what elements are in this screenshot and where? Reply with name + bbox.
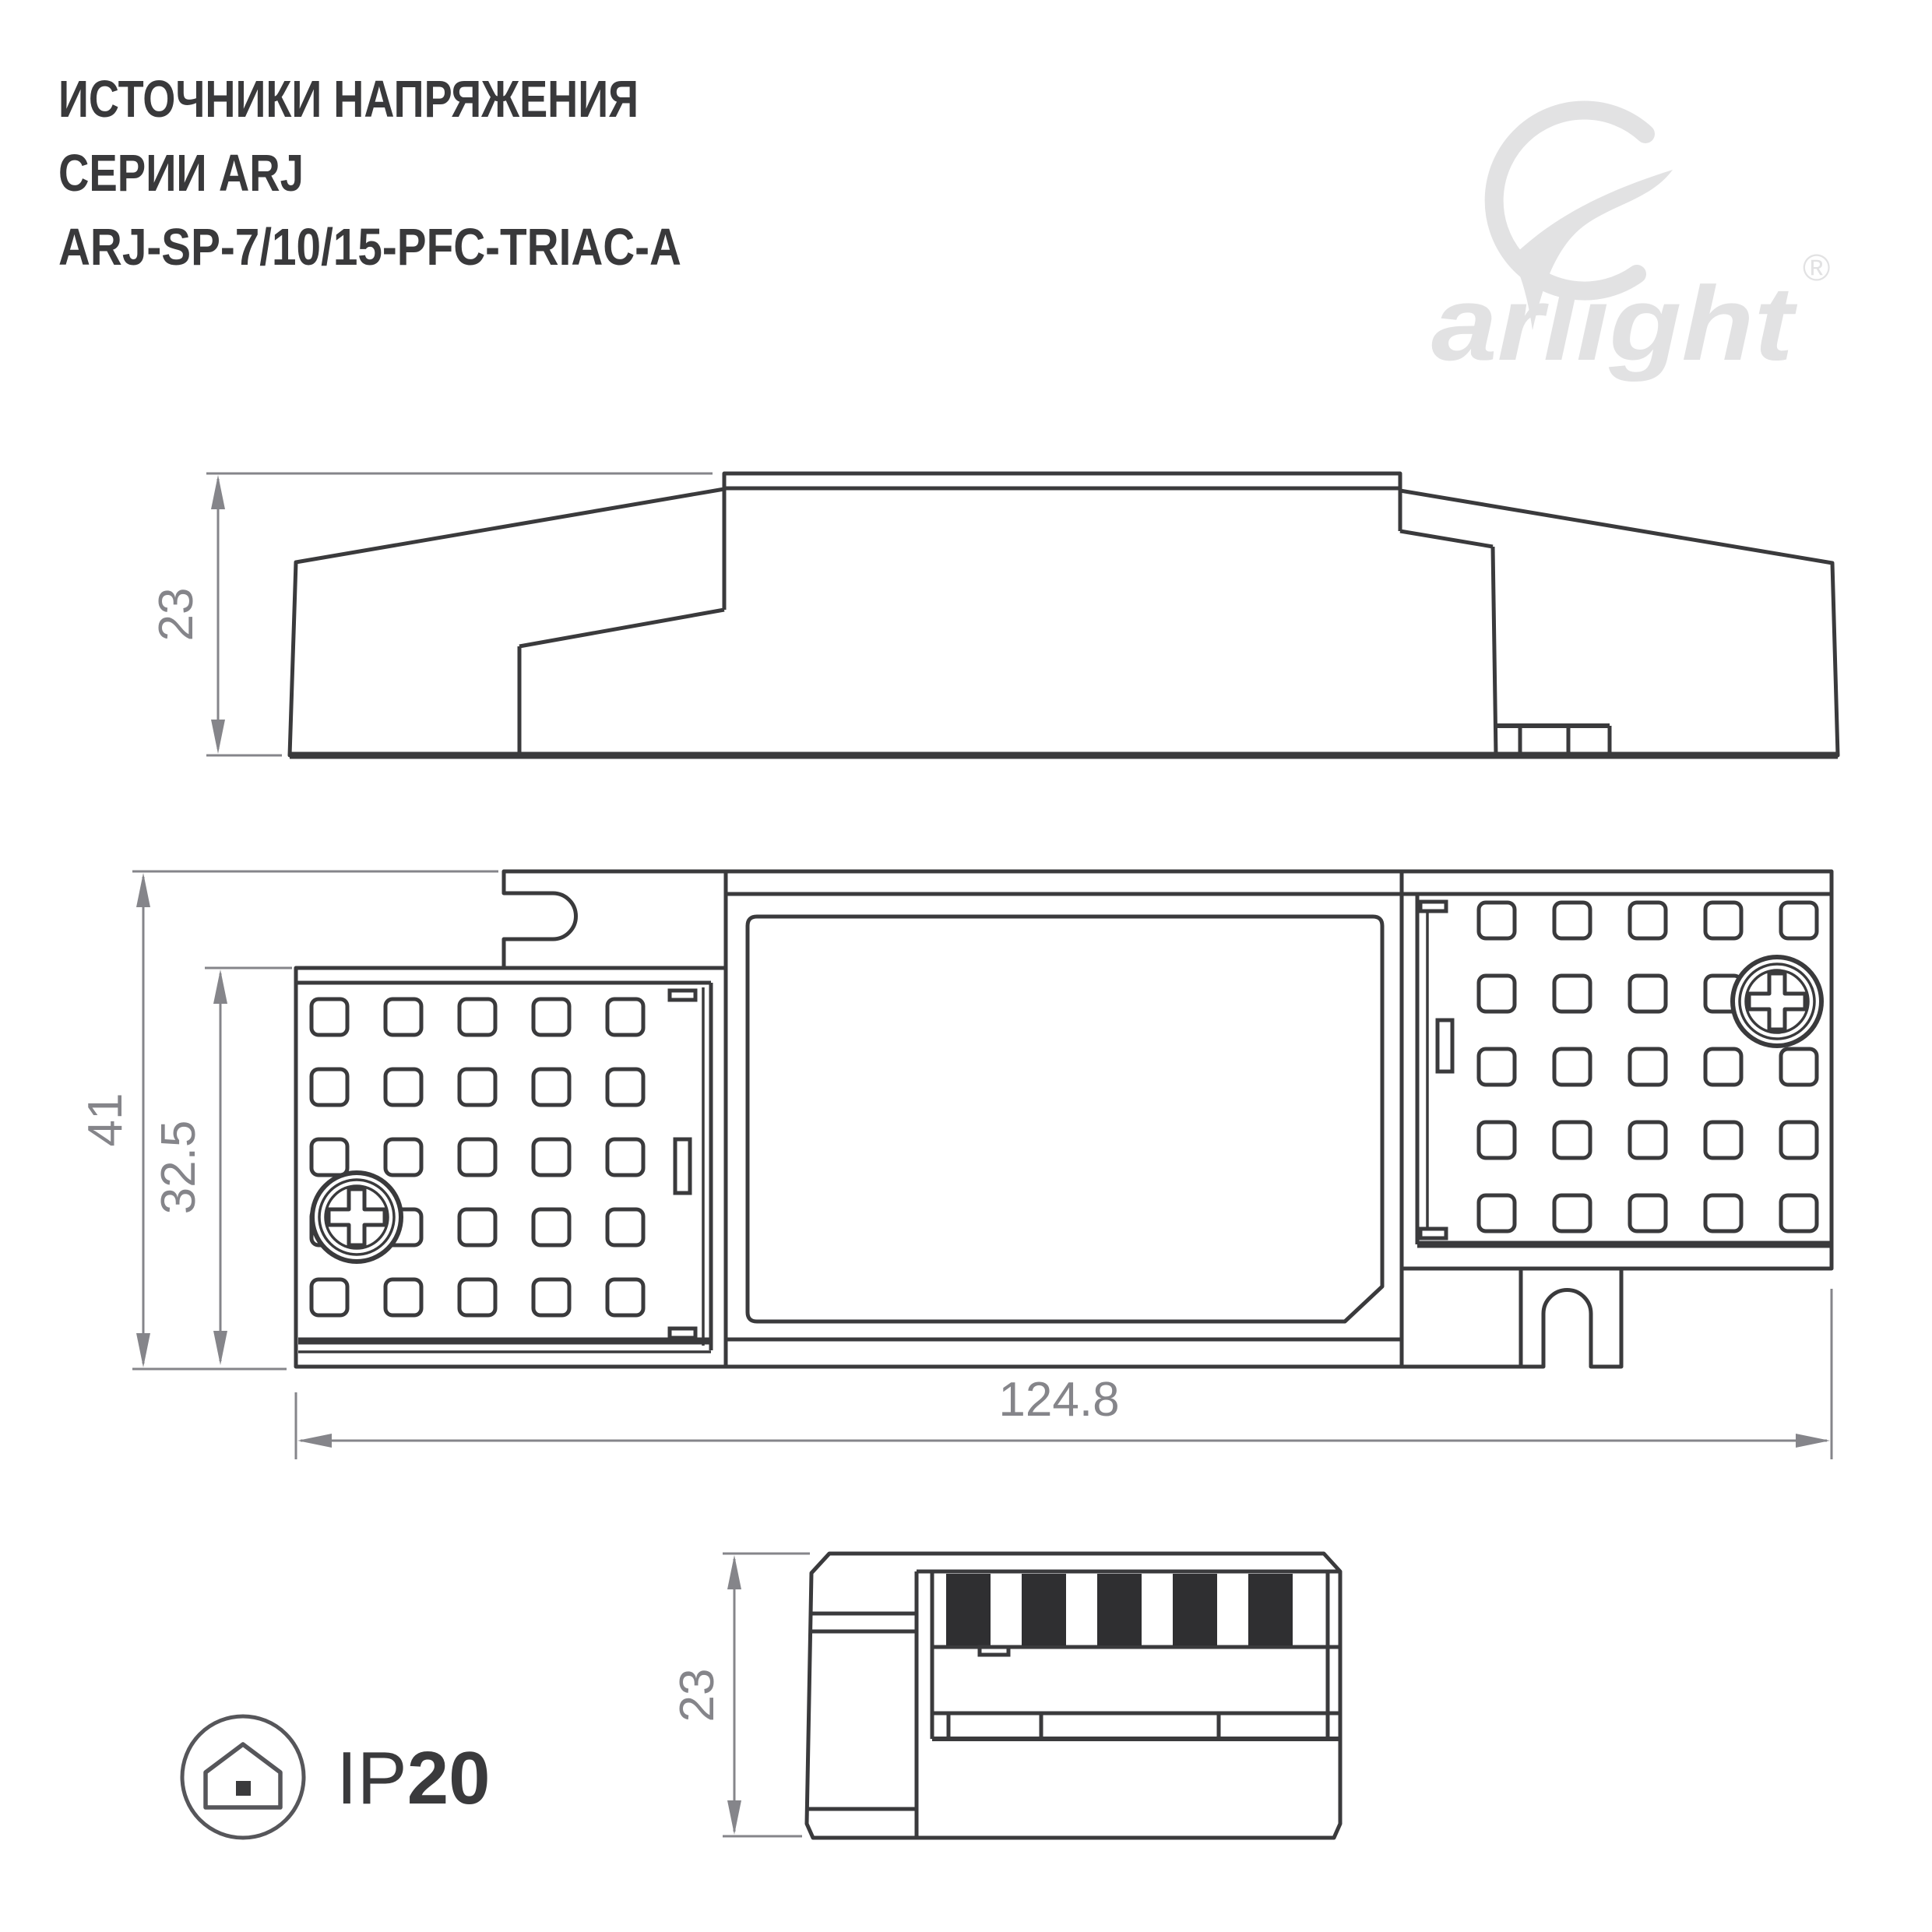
arrow-up-icon <box>727 1555 741 1589</box>
vent-hole <box>1554 1122 1590 1158</box>
title-line-3: ARJ-SP-7/10/15-PFC-TRIAC-A <box>58 218 681 276</box>
vent-hole <box>1630 1049 1666 1085</box>
vent-hole <box>533 1069 569 1105</box>
top-view: 41 32.5 124.8 <box>79 871 1832 1459</box>
vent-hole <box>1705 903 1741 938</box>
vent-hole <box>459 999 495 1035</box>
dimension-value: 23 <box>150 588 203 642</box>
wire-slot <box>946 1574 991 1645</box>
datasheet-page: ИСТОЧНИКИ НАПРЯЖЕНИЯ СЕРИИ ARJ ARJ-SP-7/… <box>0 0 1932 1932</box>
wire-slot <box>1022 1574 1066 1645</box>
house-dot <box>236 1781 251 1796</box>
ip-value: 20 <box>407 1737 491 1820</box>
wire-slot <box>1097 1574 1142 1645</box>
vent-hole <box>533 999 569 1035</box>
page-title: ИСТОЧНИКИ НАПРЯЖЕНИЯ СЕРИИ ARJ ARJ-SP-7/… <box>58 70 681 276</box>
vent-hole <box>1479 1195 1515 1231</box>
vent-hole <box>459 1209 495 1245</box>
vent-hole <box>385 1069 421 1105</box>
ip-prefix: IP <box>336 1737 407 1820</box>
wire-slot <box>1248 1574 1293 1645</box>
vent-hole <box>1705 1049 1741 1085</box>
panel-notch <box>1420 1229 1446 1238</box>
vent-hole <box>1781 1122 1817 1158</box>
dimension-value: 41 <box>79 1093 132 1147</box>
vent-hole <box>385 1279 421 1315</box>
vent-hole <box>607 999 643 1035</box>
vent-hole <box>607 1209 643 1245</box>
vent-hole <box>1630 1195 1666 1231</box>
vent-hole <box>1705 1195 1741 1231</box>
end-height-dimension: 23 <box>670 1554 810 1836</box>
badge-circle <box>182 1716 304 1838</box>
top-cover-height-dimension: 32.5 <box>152 968 292 1365</box>
vent-hole <box>311 1139 347 1175</box>
side-outline <box>290 473 1838 755</box>
vent-hole <box>385 1139 421 1175</box>
vent-hole <box>1781 1195 1817 1231</box>
arrow-down-icon <box>213 1331 227 1365</box>
vent-hole <box>1479 1122 1515 1158</box>
vent-hole <box>311 1279 347 1315</box>
arlight-logo: arlight ® <box>1431 111 1830 382</box>
panel-notch <box>670 1328 695 1338</box>
vent-hole <box>607 1139 643 1175</box>
title-line-2: СЕРИИ ARJ <box>58 144 304 202</box>
vent-hole <box>459 1139 495 1175</box>
arrow-down-icon <box>211 720 225 754</box>
arrow-left-icon <box>297 1434 332 1448</box>
vent-hole <box>1554 1195 1590 1231</box>
dimension-value: 124.8 <box>998 1373 1119 1427</box>
label-area <box>748 917 1382 1321</box>
vent-hole <box>1781 1049 1817 1085</box>
arrow-right-icon <box>1796 1434 1830 1448</box>
vent-hole <box>607 1279 643 1315</box>
vent-hole <box>1705 1122 1741 1158</box>
vent-hole <box>1554 976 1590 1012</box>
vent-hole <box>533 1139 569 1175</box>
vent-hole <box>1554 903 1590 938</box>
side-view: 23 <box>150 473 1838 755</box>
arrow-up-icon <box>213 970 227 1004</box>
dimension-value: 23 <box>670 1669 724 1723</box>
vent-hole <box>385 999 421 1035</box>
title-line-1: ИСТОЧНИКИ НАПРЯЖЕНИЯ <box>58 70 639 128</box>
panel-notch <box>1420 902 1446 911</box>
arrow-up-icon <box>136 873 150 907</box>
vent-hole <box>1630 976 1666 1012</box>
registered-mark: ® <box>1803 248 1830 289</box>
logo-wordmark: arlight <box>1431 265 1798 382</box>
panel-notch <box>670 991 695 1000</box>
panel-clip <box>675 1139 690 1193</box>
terminal-latch <box>980 1647 1008 1655</box>
arrow-down-icon <box>727 1800 741 1835</box>
ip-rating-label: IP20 <box>336 1737 490 1820</box>
vent-hole <box>1554 1049 1590 1085</box>
left-screw-icon <box>312 1173 401 1262</box>
panel-clip <box>1438 1020 1452 1072</box>
house-in-circle-icon <box>206 1744 280 1807</box>
wire-slot <box>1173 1574 1217 1645</box>
vent-hole <box>533 1209 569 1245</box>
technical-drawing: ИСТОЧНИКИ НАПРЯЖЕНИЯ СЕРИИ ARJ ARJ-SP-7/… <box>0 0 1932 1932</box>
right-screw-icon <box>1733 957 1821 1046</box>
dimension-value: 32.5 <box>152 1121 206 1215</box>
vent-hole <box>607 1069 643 1105</box>
arrow-up-icon <box>211 475 225 509</box>
arrow-down-icon <box>136 1333 150 1367</box>
vent-hole <box>459 1279 495 1315</box>
end-view: 23 <box>670 1554 1340 1838</box>
vent-hole <box>311 1069 347 1105</box>
vent-hole <box>1630 903 1666 938</box>
ip-protection-badge: IP20 <box>182 1716 490 1838</box>
vent-hole <box>1479 1049 1515 1085</box>
vent-hole <box>1479 976 1515 1012</box>
vent-hole <box>459 1069 495 1105</box>
vent-hole <box>1630 1122 1666 1158</box>
vent-hole <box>1479 903 1515 938</box>
vent-hole <box>311 999 347 1035</box>
vent-hole <box>1781 903 1817 938</box>
vent-hole <box>533 1279 569 1315</box>
